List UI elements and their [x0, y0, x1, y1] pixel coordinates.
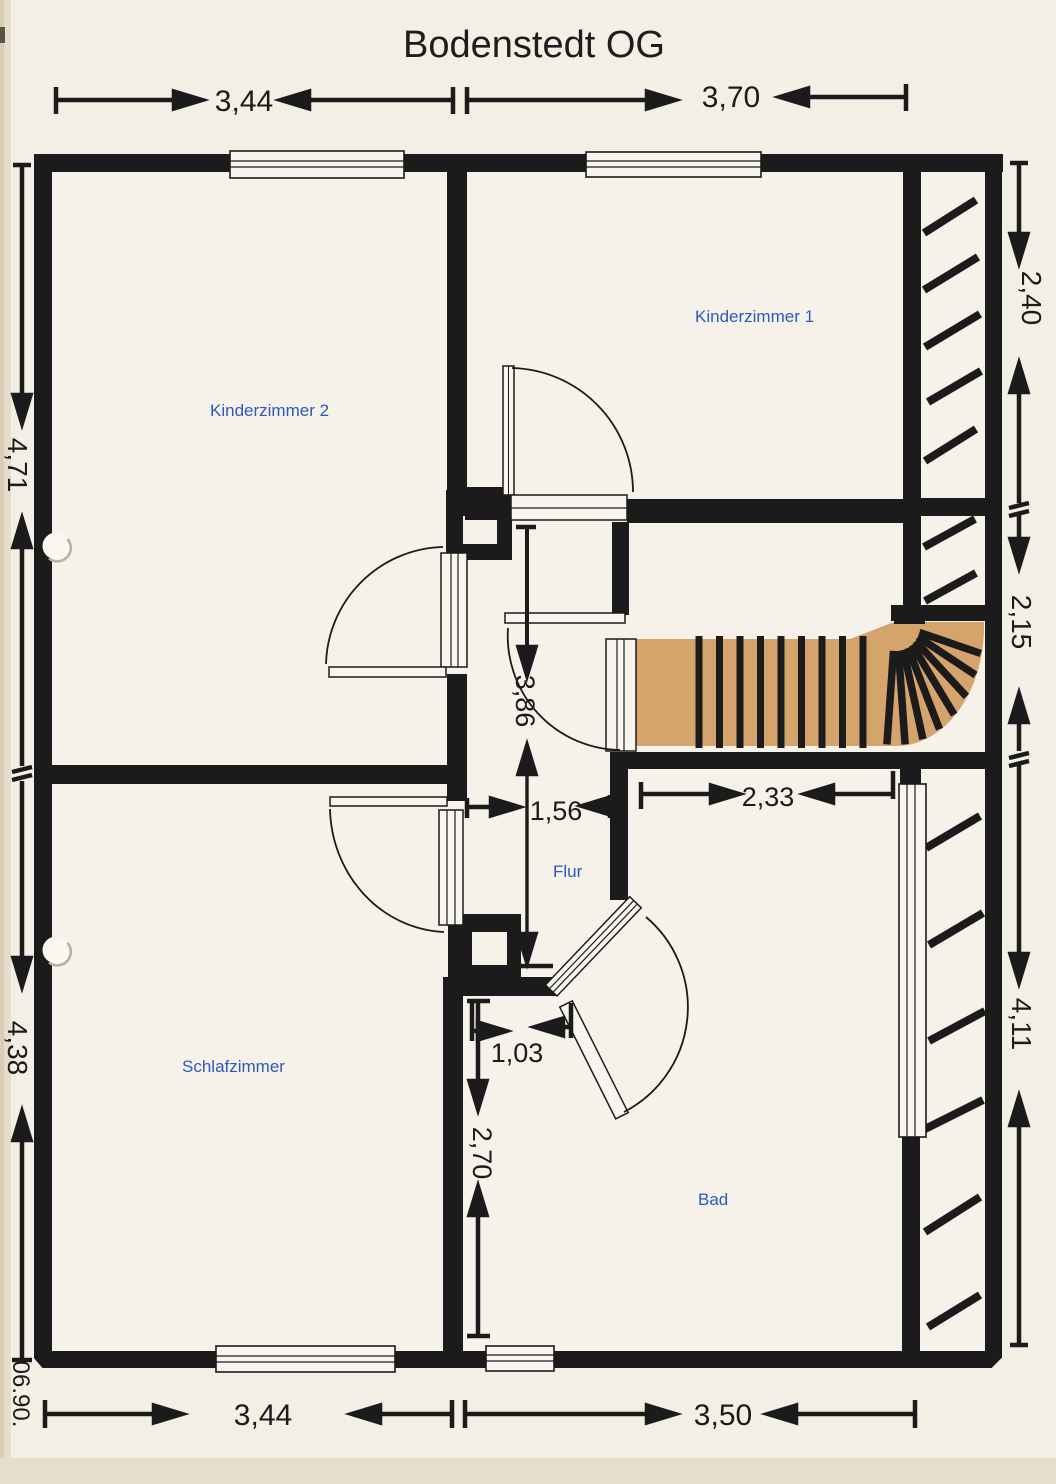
svg-text:3,86: 3,86 — [510, 675, 540, 728]
svg-text:1,03: 1,03 — [491, 1038, 544, 1068]
svg-text:3,50: 3,50 — [694, 1399, 752, 1432]
svg-text:2,33: 2,33 — [742, 782, 795, 812]
svg-text:Kinderzimmer 2: Kinderzimmer 2 — [210, 401, 329, 420]
svg-text:Bodenstedt OG: Bodenstedt OG — [403, 24, 665, 66]
svg-text:2,15: 2,15 — [1006, 595, 1037, 650]
svg-text:4,38: 4,38 — [2, 1021, 33, 1076]
svg-text:2,70: 2,70 — [467, 1127, 497, 1180]
svg-text:06.90.: 06.90. — [7, 1361, 34, 1428]
svg-text:Flur: Flur — [553, 862, 583, 881]
svg-text:4,11: 4,11 — [1006, 998, 1037, 1050]
svg-text:Bad: Bad — [698, 1190, 728, 1209]
svg-text:Schlafzimmer: Schlafzimmer — [182, 1057, 285, 1076]
svg-text:3,44: 3,44 — [234, 1399, 292, 1432]
svg-text:2,40: 2,40 — [1016, 271, 1047, 326]
svg-text:Kinderzimmer 1: Kinderzimmer 1 — [695, 307, 814, 326]
svg-text:3,44: 3,44 — [215, 85, 273, 118]
svg-text:4,71: 4,71 — [2, 438, 33, 493]
svg-text:1,56: 1,56 — [530, 796, 583, 826]
svg-text:3,70: 3,70 — [702, 81, 760, 114]
